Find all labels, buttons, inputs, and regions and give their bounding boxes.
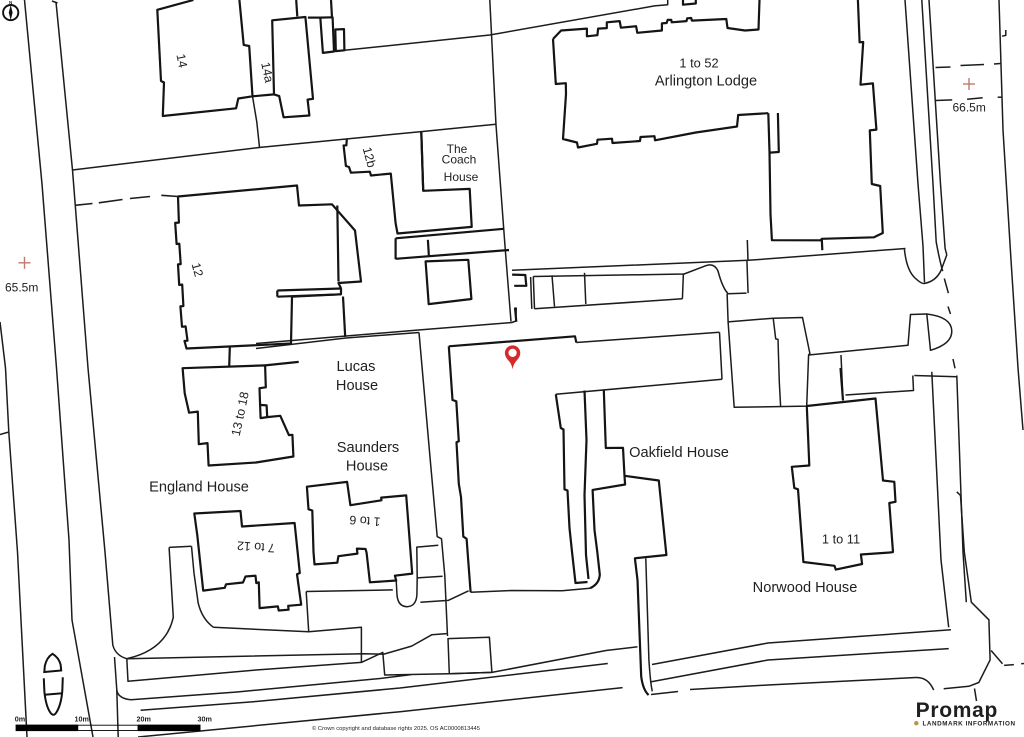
svg-text:Saunders: Saunders <box>337 440 399 456</box>
svg-text:House: House <box>444 170 479 184</box>
svg-text:1 to 52: 1 to 52 <box>679 56 718 71</box>
svg-text:Oakfield House: Oakfield House <box>629 445 729 461</box>
svg-text:1 to 11: 1 to 11 <box>822 532 860 547</box>
svg-text:Lucas: Lucas <box>337 359 376 375</box>
svg-text:Coach: Coach <box>442 153 477 167</box>
svg-text:65.5m: 65.5m <box>5 281 38 295</box>
svg-text:7 to 12: 7 to 12 <box>236 538 275 555</box>
svg-text:30m: 30m <box>198 715 212 724</box>
svg-text:10m: 10m <box>75 715 89 724</box>
svg-text:1 to 6: 1 to 6 <box>349 513 381 529</box>
svg-text:Promap: Promap <box>916 699 998 722</box>
svg-text:20m: 20m <box>137 715 151 724</box>
svg-text:14: 14 <box>173 53 190 69</box>
svg-text:66.5m: 66.5m <box>953 101 986 115</box>
svg-text:House: House <box>336 378 378 394</box>
svg-text:0m: 0m <box>15 715 25 724</box>
svg-text:© Crown copyright and database: © Crown copyright and database rights 20… <box>312 725 480 732</box>
svg-text:LANDMARK INFORMATION: LANDMARK INFORMATION <box>923 721 1016 728</box>
svg-text:House: House <box>346 458 388 474</box>
svg-text:Norwood House: Norwood House <box>753 580 858 596</box>
svg-text:Arlington Lodge: Arlington Lodge <box>655 74 757 90</box>
svg-text:England House: England House <box>149 480 249 496</box>
